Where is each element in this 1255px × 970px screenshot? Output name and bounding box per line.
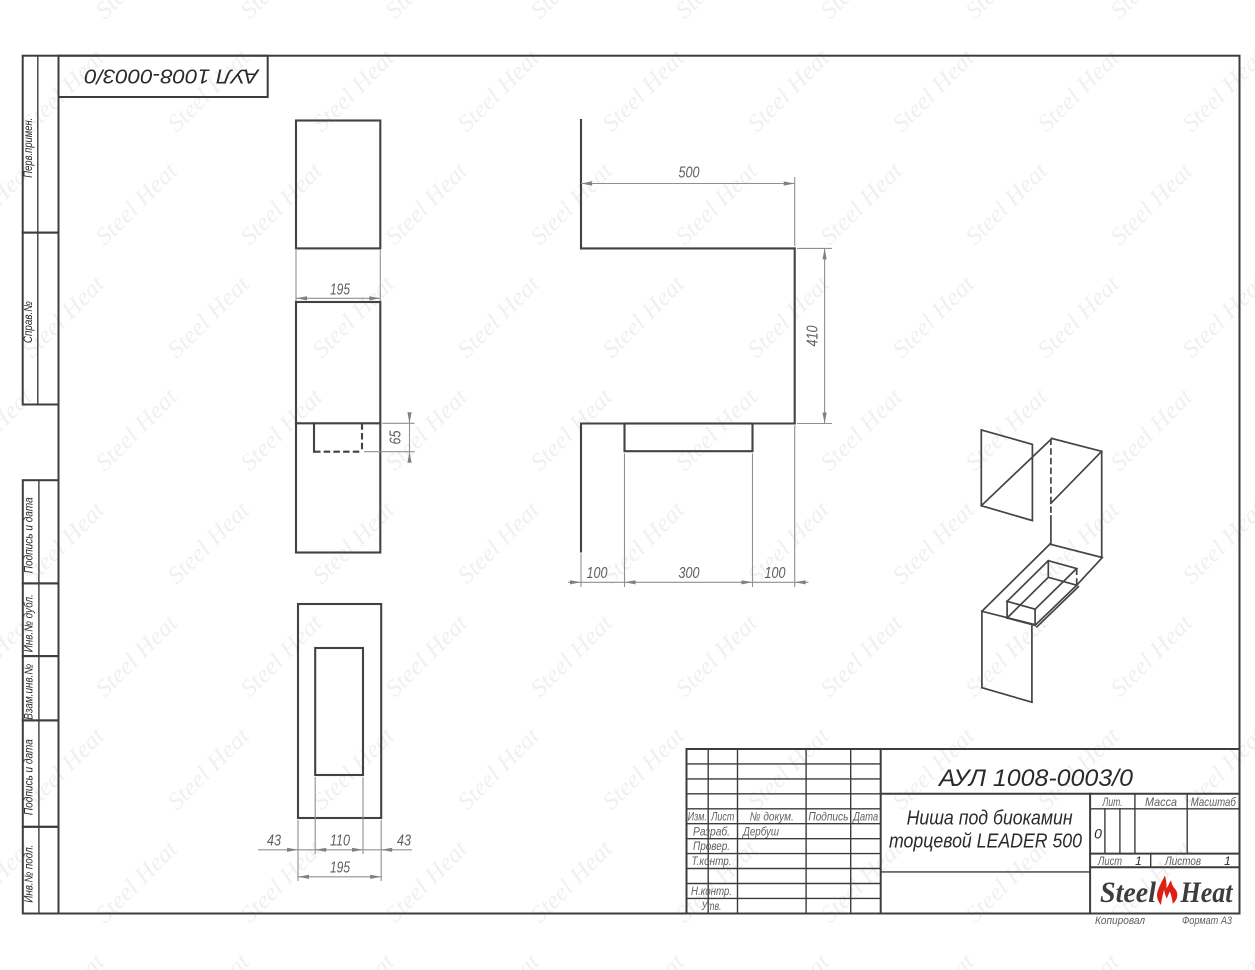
svg-text:Масштаб: Масштаб — [1191, 795, 1237, 809]
svg-text:Подпись и дата: Подпись и дата — [23, 497, 35, 573]
svg-text:100: 100 — [587, 565, 608, 582]
svg-text:300: 300 — [679, 565, 700, 582]
svg-text:Копировал: Копировал — [1095, 915, 1145, 927]
svg-text:Провер.: Провер. — [693, 839, 730, 853]
svg-text:1: 1 — [1224, 854, 1231, 868]
svg-text:195: 195 — [330, 282, 350, 299]
svg-text:110: 110 — [330, 833, 350, 850]
svg-text:АУЛ 1008-0003/0: АУЛ 1008-0003/0 — [937, 765, 1134, 792]
svg-text:43: 43 — [397, 833, 411, 850]
svg-text:№ докум.: № докум. — [750, 810, 794, 824]
svg-text:Изм.: Изм. — [688, 810, 707, 824]
svg-text:65: 65 — [388, 430, 405, 444]
svg-text:Листов: Листов — [1164, 854, 1201, 868]
svg-text:Взам.инв.№: Взам.инв.№ — [23, 663, 35, 719]
svg-text:Дата: Дата — [852, 810, 879, 824]
svg-text:Н.контр.: Н.контр. — [691, 884, 732, 898]
svg-text:Steel: Steel — [1100, 876, 1157, 909]
svg-text:Перв.примен.: Перв.примен. — [23, 118, 35, 178]
svg-text:195: 195 — [330, 860, 350, 877]
svg-text:АУЛ 1008-0003/0: АУЛ 1008-0003/0 — [85, 65, 260, 87]
svg-text:Подпись и дата: Подпись и дата — [23, 739, 35, 815]
svg-text:Разраб.: Разраб. — [693, 824, 730, 838]
svg-text:Лист: Лист — [1097, 854, 1122, 868]
svg-text:Подпись: Подпись — [808, 810, 848, 824]
svg-text:Справ.№: Справ.№ — [23, 301, 35, 343]
svg-text:Heat: Heat — [1180, 876, 1234, 909]
svg-text:Масса: Масса — [1145, 795, 1177, 809]
svg-text:торцевой LEADER 500: торцевой LEADER 500 — [889, 831, 1082, 853]
svg-text:43: 43 — [267, 833, 281, 850]
svg-text:0: 0 — [1094, 826, 1102, 842]
svg-text:Инв.№ дубл.: Инв.№ дубл. — [23, 594, 35, 652]
svg-text:Утв.: Утв. — [701, 899, 722, 913]
svg-text:Лит.: Лит. — [1102, 795, 1123, 809]
svg-text:Т.контр.: Т.контр. — [692, 854, 732, 868]
svg-text:Формат А3: Формат А3 — [1182, 915, 1233, 927]
svg-text:500: 500 — [679, 165, 700, 182]
svg-text:Дербуш: Дербуш — [741, 824, 779, 838]
svg-text:Инв.№ подл.: Инв.№ подл. — [23, 845, 35, 903]
svg-text:1: 1 — [1135, 854, 1142, 868]
svg-text:410: 410 — [805, 325, 822, 346]
svg-text:Лист: Лист — [711, 810, 735, 824]
svg-text:Ниша под биокамин: Ниша под биокамин — [907, 808, 1073, 830]
svg-text:100: 100 — [765, 565, 786, 582]
